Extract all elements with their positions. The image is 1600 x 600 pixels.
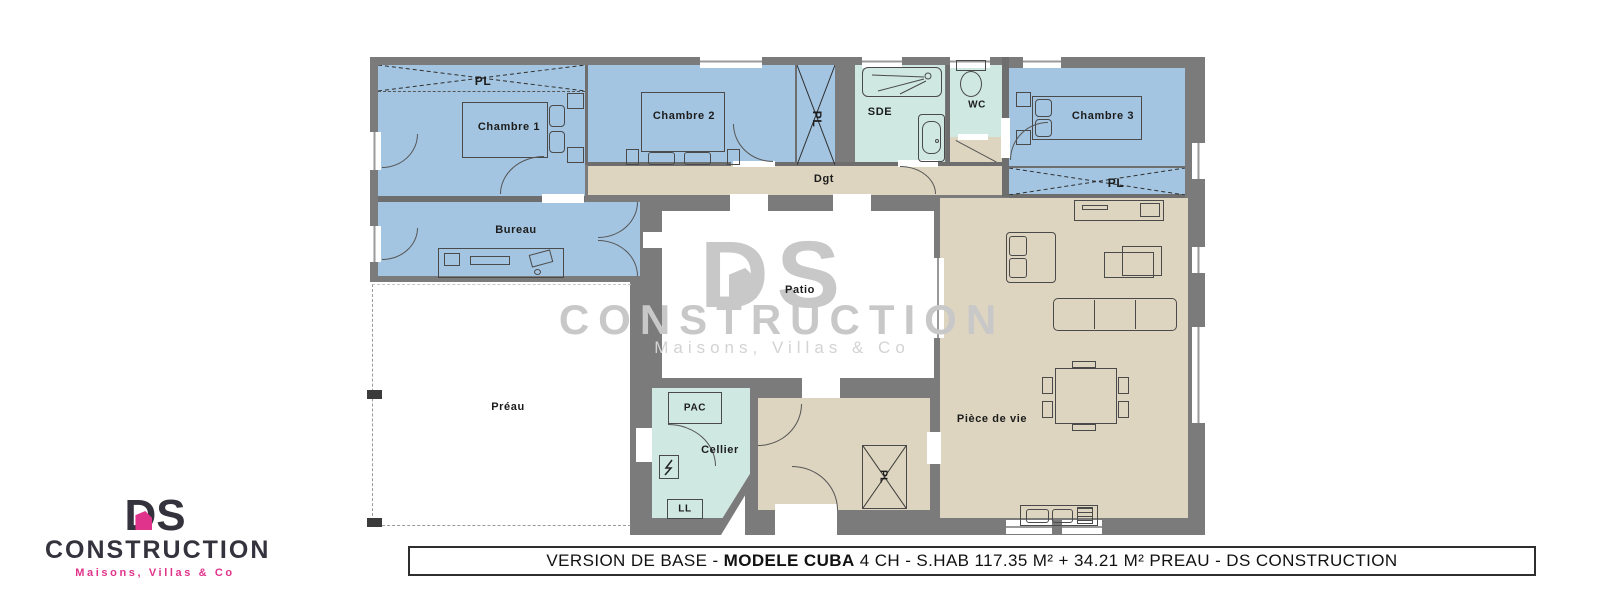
dining-chair: [1118, 377, 1129, 394]
room-label-dgt: Dgt: [814, 173, 834, 185]
nightstand: [567, 147, 584, 163]
patio-opening-top-a: [730, 194, 768, 212]
baywindow-sejour-right: [1192, 327, 1205, 423]
armchair-cushion: [1009, 236, 1027, 256]
window-sejour-right: [1192, 247, 1205, 273]
dining-chair: [1072, 361, 1096, 368]
nightstand: [727, 149, 740, 165]
closet-label-pl2: PL: [810, 111, 824, 128]
window-chambre1-left: [368, 132, 381, 170]
patio-opening-top-b: [833, 194, 871, 212]
room-label-pac: PAC: [684, 403, 706, 414]
kitchen-sink: [1052, 509, 1073, 523]
desk-sejour-laptop: [1082, 205, 1108, 210]
wall-dgt-top-b: [775, 162, 898, 166]
door-gap-wc: [958, 134, 988, 140]
wall-dgt-top-c: [938, 162, 1009, 166]
room-label-wc: WC: [968, 100, 986, 111]
desk-sejour-chair: [1140, 203, 1160, 217]
banner-model-name: MODELE CUBA: [724, 551, 855, 571]
bed-chambre2: [641, 92, 725, 152]
logo-ds-text: DS: [124, 494, 185, 538]
company-logo: DS CONSTRUCTION Maisons, Villas & Co: [45, 494, 265, 579]
coffee-table: [1122, 246, 1162, 276]
wall-sde-wc: [946, 65, 950, 163]
room-label-cellier: Cellier: [701, 444, 739, 456]
sofa-seam: [1135, 300, 1136, 329]
hall-dgt: [588, 165, 1009, 195]
banner-prefix: VERSION DE BASE -: [546, 551, 723, 571]
desk-mouse: [534, 269, 541, 275]
sofa-seam: [1094, 300, 1095, 329]
patio-opening-left: [643, 232, 663, 248]
logo-tagline-text: Maisons, Villas & Co: [45, 567, 265, 579]
pillow: [648, 152, 675, 165]
door-gap-entry-sejour: [927, 432, 941, 464]
logo-construction-text: CONSTRUCTION: [45, 536, 265, 565]
door-gap-cellier-preau: [636, 428, 652, 462]
desk-screen: [444, 253, 460, 266]
closet-pl3-cross: [1009, 168, 1185, 195]
pillow: [549, 105, 565, 127]
nightstand: [567, 93, 584, 109]
room-label-chambre2: Chambre 2: [653, 110, 715, 122]
door-gap-chambre3: [1001, 118, 1010, 158]
window-chambre2-top: [700, 55, 762, 68]
vanity-drain: [935, 139, 939, 143]
room-label-bureau: Bureau: [495, 224, 537, 236]
nightstand: [626, 149, 639, 165]
title-banner: VERSION DE BASE - MODELE CUBA 4 CH - S.H…: [408, 546, 1536, 576]
logo-ds-letters: DS: [124, 491, 185, 540]
pillow: [684, 152, 711, 165]
room-label-sde: SDE: [868, 106, 892, 118]
preau-post-bottom: [367, 518, 382, 527]
dining-chair: [1042, 377, 1053, 394]
closet-label-pl4: PL: [878, 470, 889, 484]
room-label-patio: Patio: [785, 284, 815, 296]
vanity-basin: [922, 121, 941, 154]
toilet-tank: [956, 60, 986, 71]
shower: [862, 67, 942, 97]
room-label-piece-de-vie: Pièce de vie: [957, 413, 1027, 425]
dining-table: [1055, 368, 1117, 424]
room-label-preau: Préau: [491, 401, 525, 413]
patio-opening-bottom: [802, 377, 840, 398]
room-label-ll: LL: [678, 504, 691, 515]
toilet-bowl: [960, 71, 982, 97]
preau-post-top: [367, 390, 382, 399]
kitchen-sink: [1026, 509, 1049, 523]
closet-label-pl1: PL: [475, 74, 492, 88]
watermark-construction: CONSTRUCTION: [559, 296, 1005, 344]
window-chambre3-top: [1023, 55, 1061, 68]
desk-keyboard: [470, 256, 510, 265]
sofa: [1053, 298, 1177, 331]
dining-chair: [1118, 401, 1129, 418]
electrical-bolt-icon: [659, 455, 679, 479]
watermark-tagline: Maisons, Villas & Co: [654, 338, 910, 358]
room-label-chambre3: Chambre 3: [1072, 110, 1134, 122]
room-label-chambre1: Chambre 1: [478, 121, 540, 133]
closet-label-pl3: PL: [1108, 176, 1125, 190]
kitchen-hob: [1077, 507, 1093, 524]
door-gap-chambre1: [542, 194, 584, 203]
pillow: [1035, 99, 1052, 117]
dining-chair: [1042, 401, 1053, 418]
wall-chambre1-chambre2: [585, 65, 588, 165]
pillow: [549, 131, 565, 153]
nightstand: [1016, 92, 1031, 107]
banner-suffix: 4 CH - S.HAB 117.35 M² + 34.21 M² PREAU …: [855, 551, 1398, 571]
floor-plan-sheet: Chambre 1 Chambre 2 Chambre 3 SDE WC Dgt…: [0, 0, 1600, 600]
dining-chair: [1072, 424, 1096, 431]
window-bureau-left: [368, 226, 381, 262]
window-chambre3-right: [1192, 143, 1205, 179]
armchair-cushion: [1009, 258, 1027, 278]
